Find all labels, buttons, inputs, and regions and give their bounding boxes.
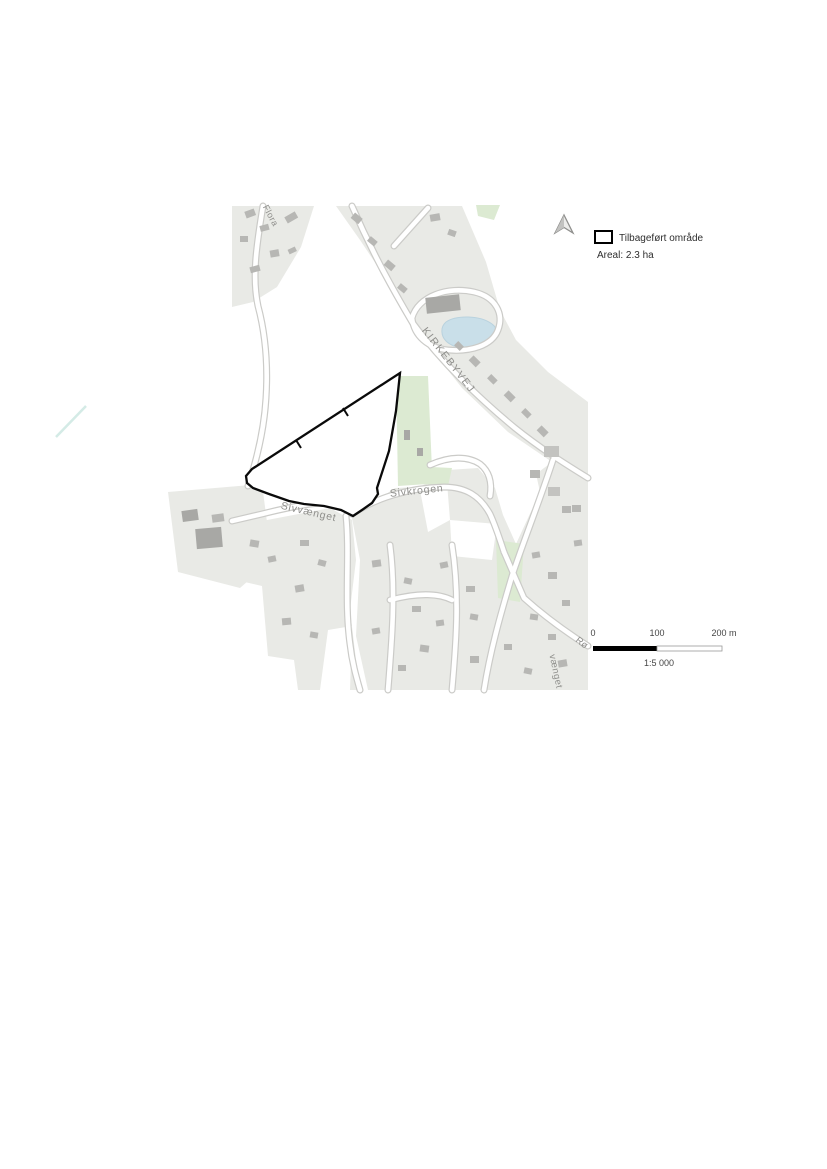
legend-swatch (595, 231, 612, 243)
legend: Tilbageført område Areal: 2.3 ha (595, 231, 704, 261)
map-canvas: KIRKEBYVEJ Sivkrogen Sivvænget Flora væn… (0, 0, 827, 1169)
scale-segment-white (657, 646, 722, 651)
scale-tick-100: 100 (649, 628, 664, 638)
scale-bar: 0 100 200 m 1:5 000 (590, 628, 736, 668)
map-document-page: KIRKEBYVEJ Sivkrogen Sivvænget Flora væn… (0, 0, 827, 1169)
scale-segment-black (593, 646, 657, 651)
stream-line (56, 406, 86, 437)
north-arrow-icon (555, 215, 573, 233)
green-top-edge (476, 205, 500, 220)
nodata-cutout-1 (450, 520, 497, 560)
legend-area-label: Areal: 2.3 ha (597, 250, 654, 261)
scale-ratio-label: 1:5 000 (644, 658, 674, 668)
scale-tick-0: 0 (590, 628, 595, 638)
legend-swatch-label: Tilbageført område (619, 232, 704, 244)
scale-tick-200: 200 m (711, 628, 736, 638)
